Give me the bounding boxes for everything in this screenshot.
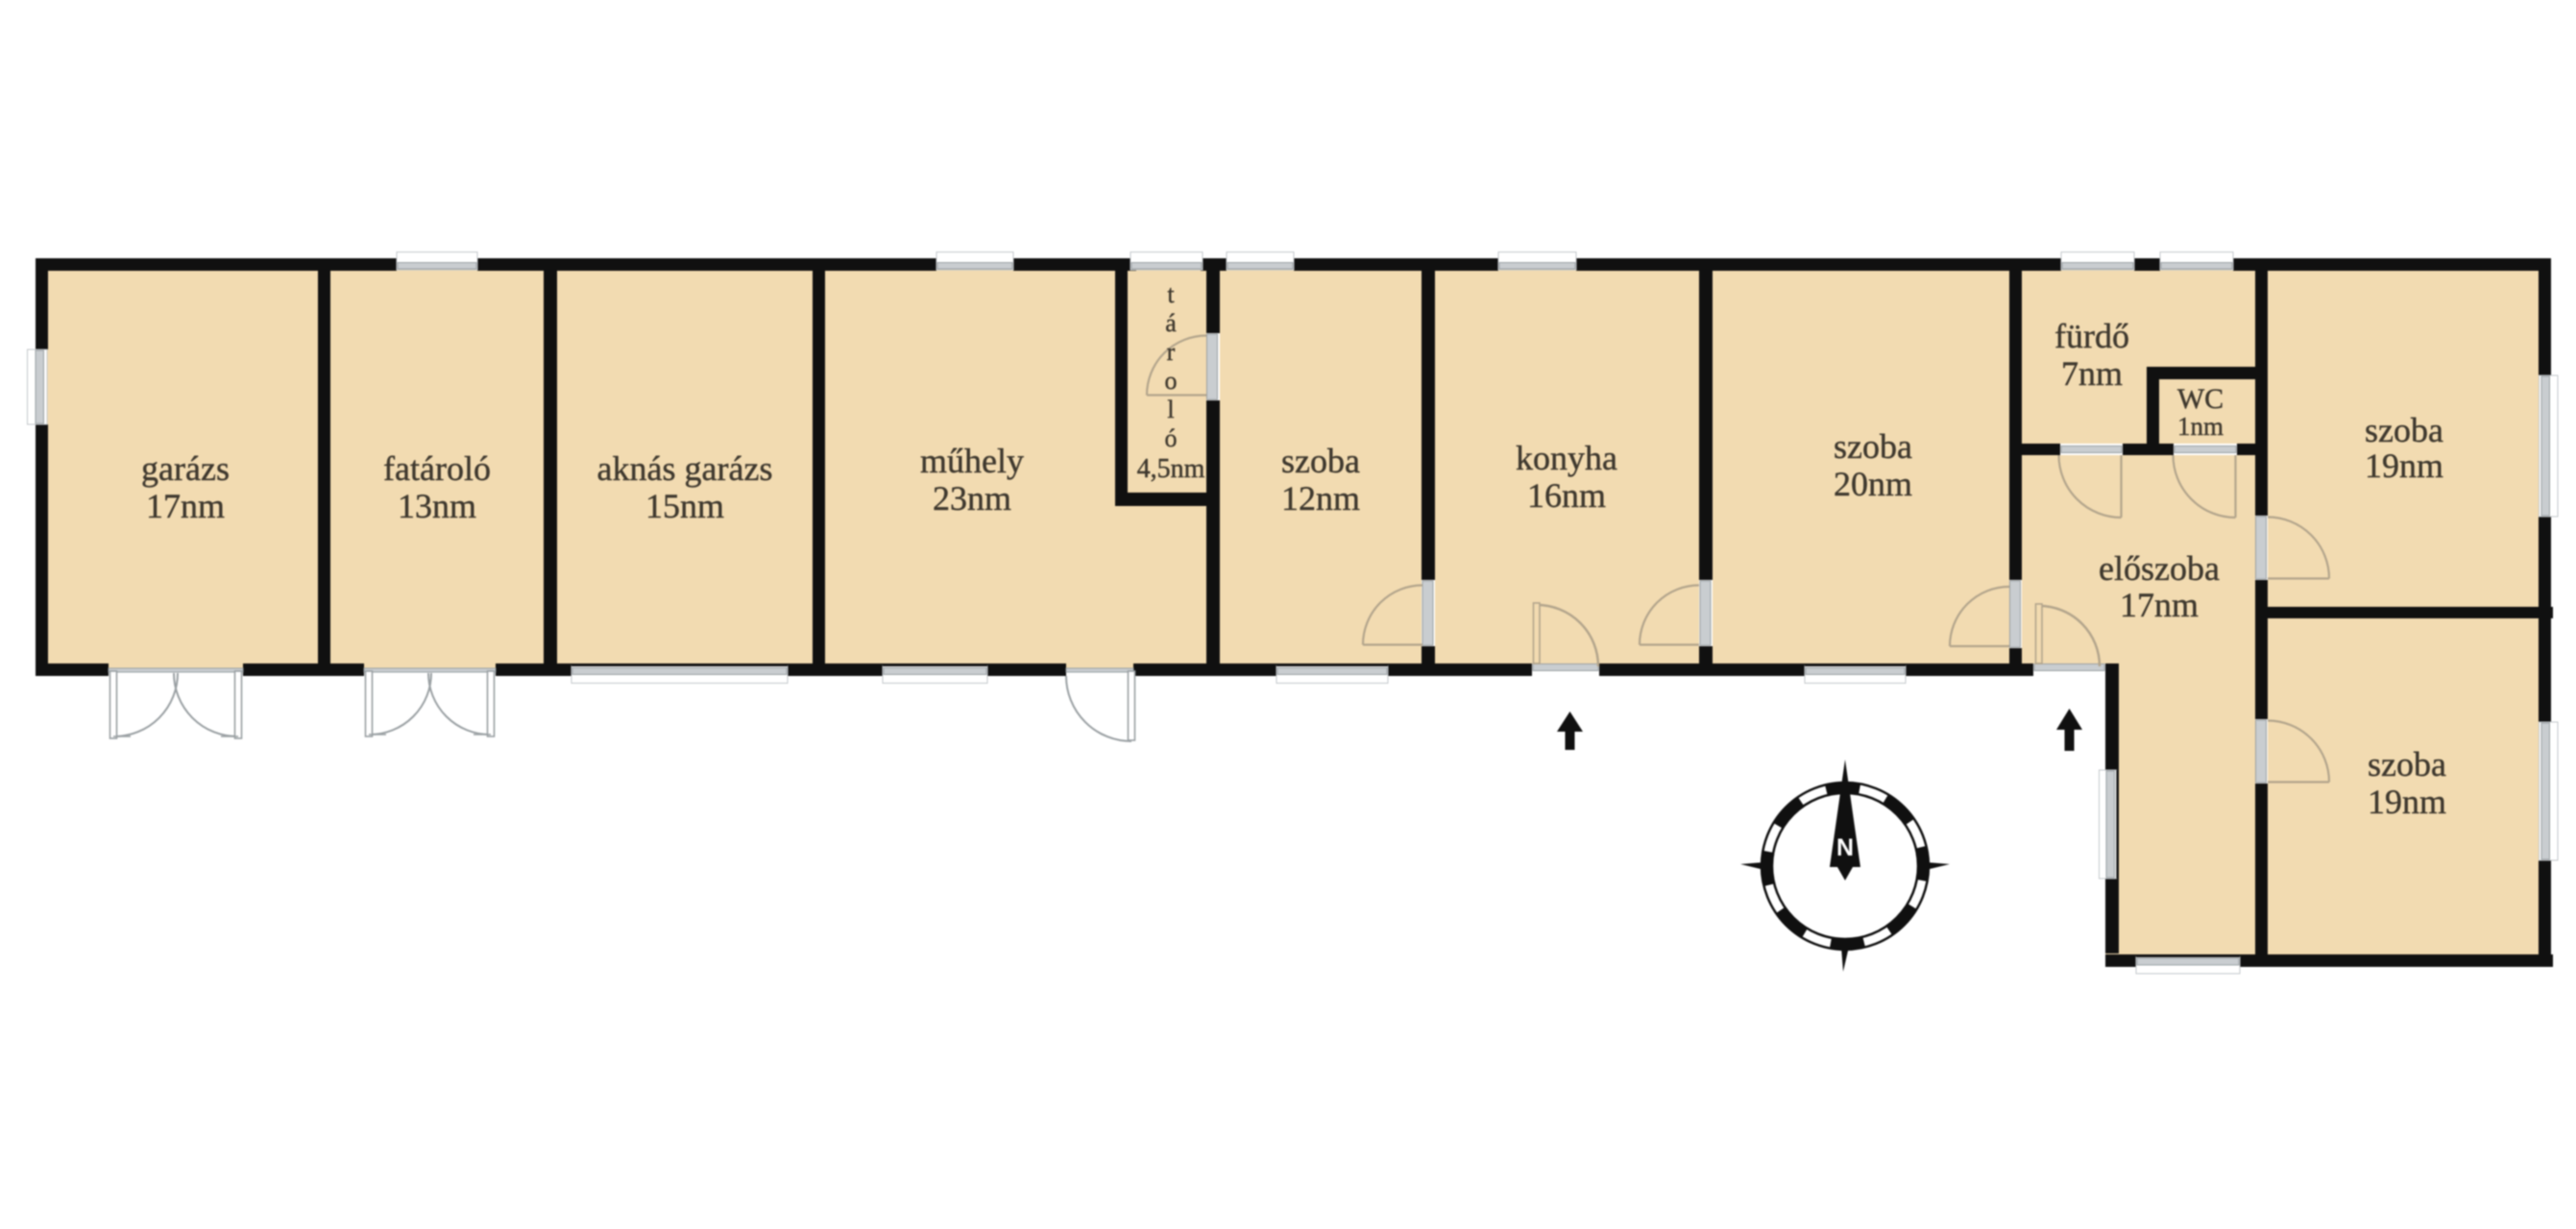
svg-text:szoba19nm: szoba19nm bbox=[2365, 411, 2443, 485]
svg-text:garázs17nm: garázs17nm bbox=[141, 449, 230, 525]
svg-text:4,5nm: 4,5nm bbox=[1137, 454, 1205, 484]
svg-text:N: N bbox=[1836, 834, 1854, 861]
svg-text:szoba19nm: szoba19nm bbox=[2368, 745, 2446, 821]
svg-text:konyha16nm: konyha16nm bbox=[1516, 439, 1617, 515]
svg-text:szoba20nm: szoba20nm bbox=[1834, 427, 1912, 503]
svg-text:WC1nm: WC1nm bbox=[2177, 383, 2224, 441]
svg-text:szoba12nm: szoba12nm bbox=[1281, 442, 1360, 518]
svg-text:fürdő7nm: fürdő7nm bbox=[2054, 317, 2129, 393]
svg-text:fatároló13nm: fatároló13nm bbox=[383, 449, 491, 525]
svg-text:műhely23nm: műhely23nm bbox=[920, 442, 1024, 518]
